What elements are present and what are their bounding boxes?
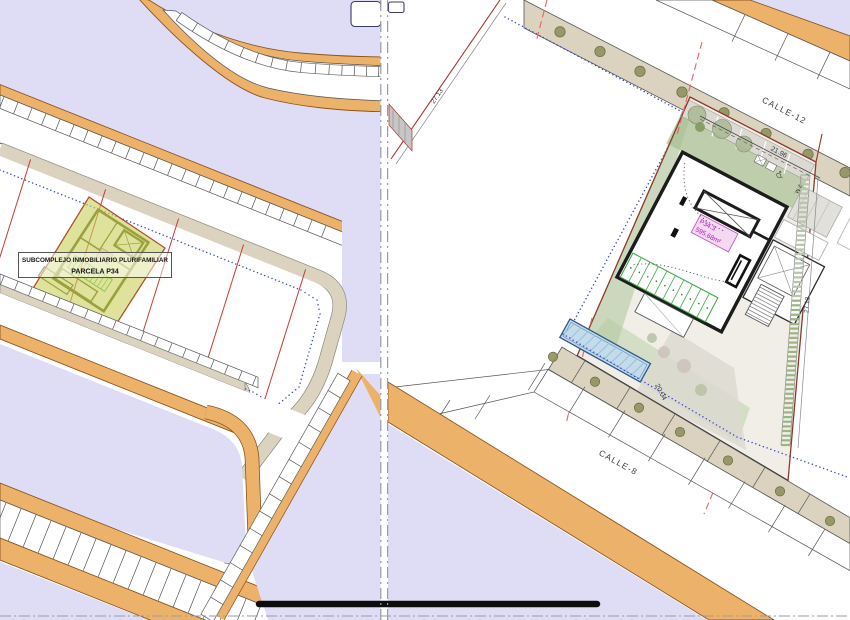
- svg-text:PARCELA P34: PARCELA P34: [71, 269, 119, 276]
- svg-text:27.13: 27.13: [803, 296, 811, 313]
- svg-text:SUBCOMPLEJO INMOBILIARIO PLURI: SUBCOMPLEJO INMOBILIARIO PLURIFAMILIAR: [22, 257, 168, 264]
